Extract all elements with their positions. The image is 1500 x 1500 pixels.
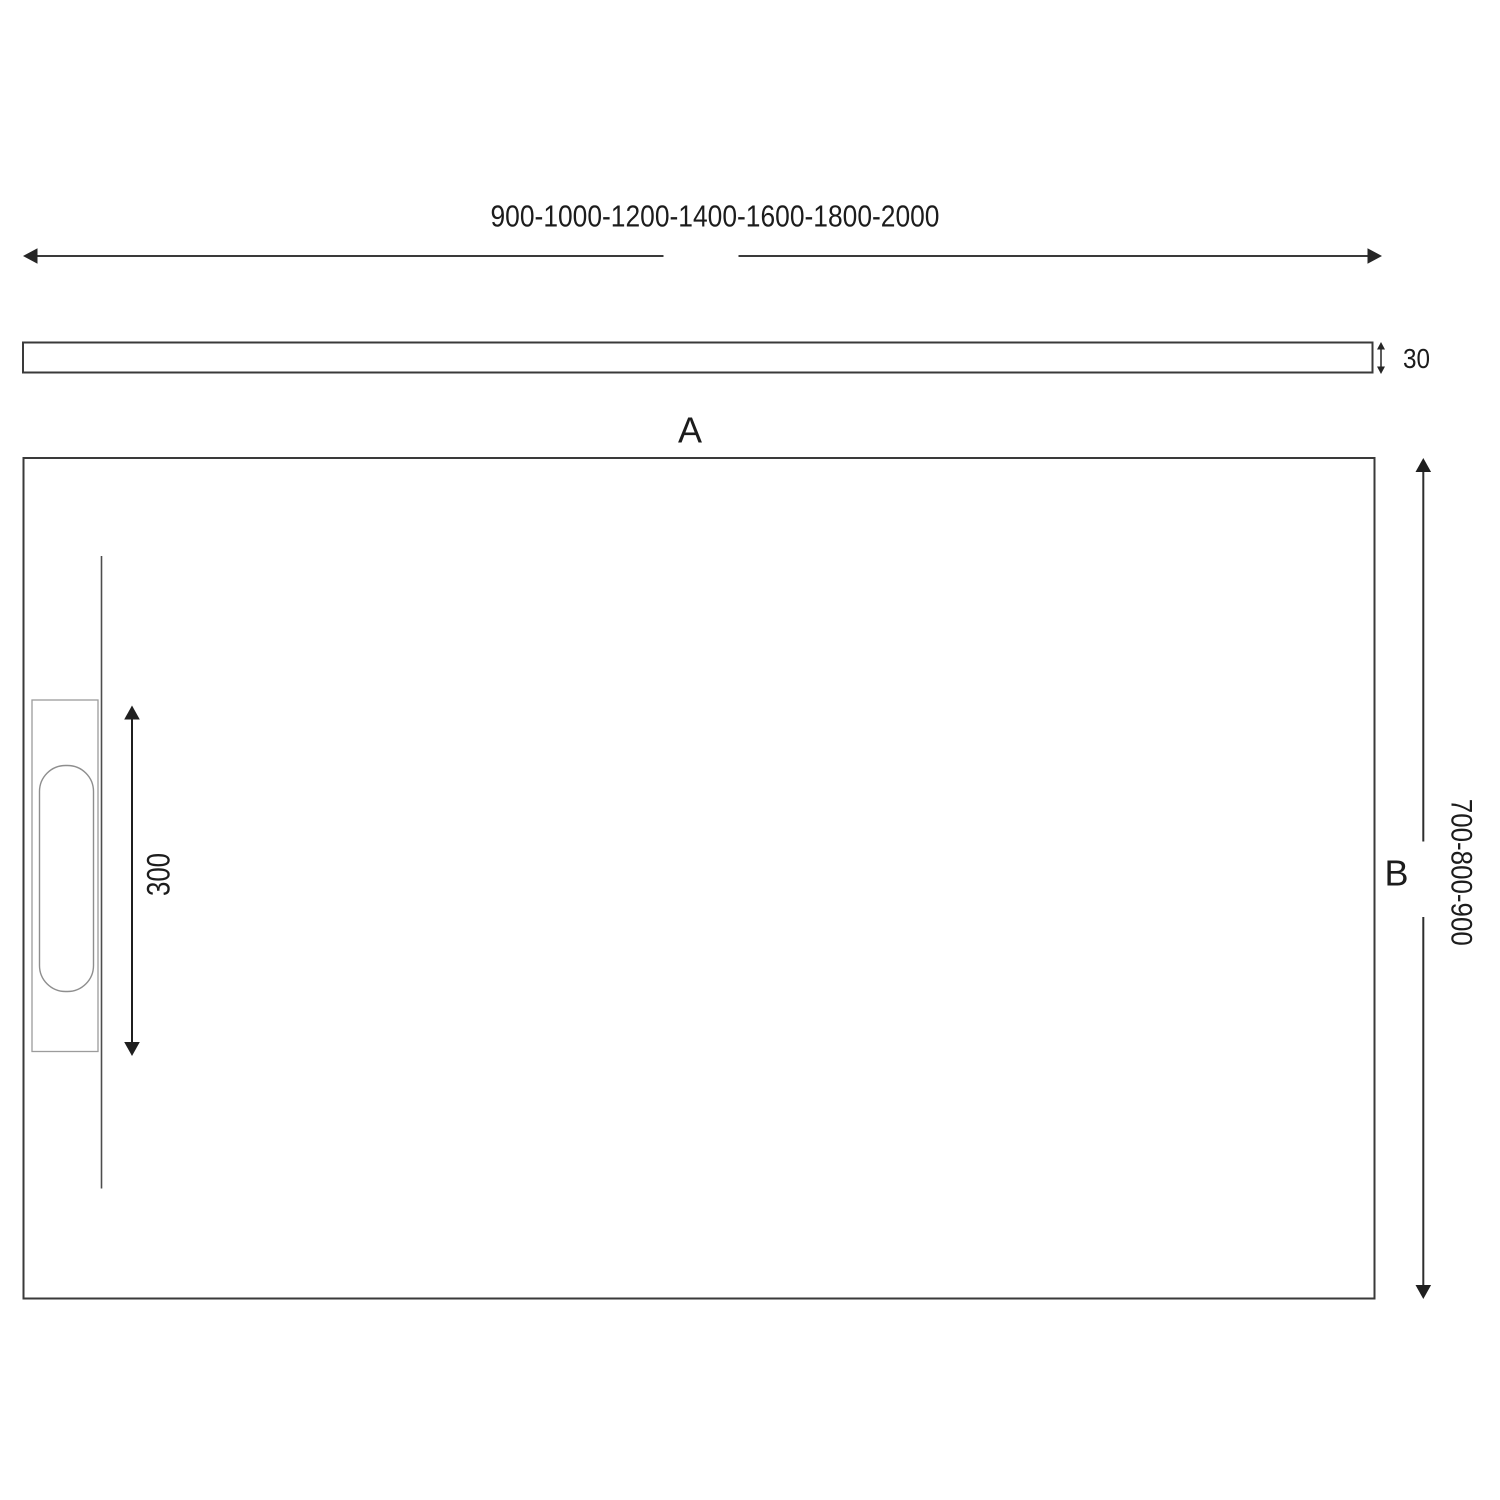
svg-text:A: A	[678, 410, 702, 451]
svg-text:30: 30	[1403, 343, 1430, 374]
svg-text:900-1000-1200-1400-1600-1800-2: 900-1000-1200-1400-1600-1800-2000	[491, 199, 940, 234]
svg-text:B: B	[1384, 853, 1408, 894]
svg-text:300: 300	[141, 853, 177, 896]
svg-text:700-800-900: 700-800-900	[1445, 799, 1478, 946]
